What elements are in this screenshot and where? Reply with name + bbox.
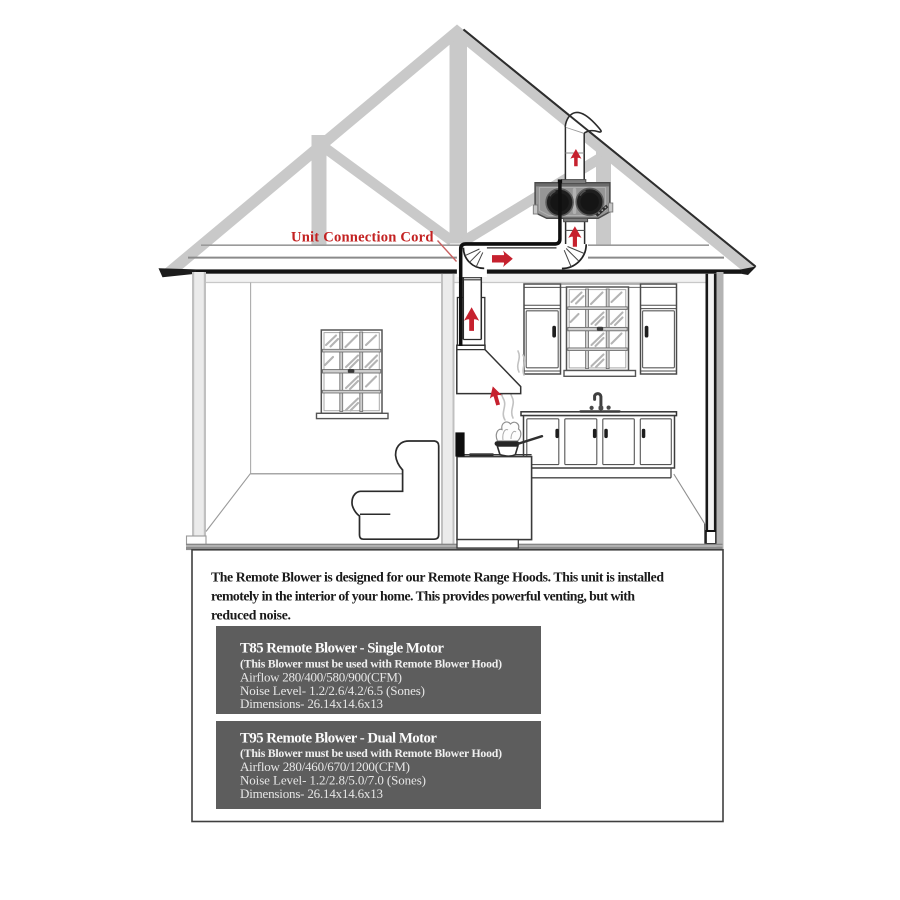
svg-text:remotely in the interior of yo: remotely in the interior of your home. T… bbox=[211, 589, 635, 604]
svg-text:T95 Remote Blower - Dual Motor: T95 Remote Blower - Dual Motor bbox=[240, 730, 437, 746]
svg-text:T85 Remote Blower - Single Mot: T85 Remote Blower - Single Motor bbox=[240, 641, 444, 657]
svg-text:The Remote Blower is designed: The Remote Blower is designed for our Re… bbox=[211, 570, 664, 585]
svg-text:reduced noise.: reduced noise. bbox=[211, 608, 291, 623]
svg-text:Dimensions- 26.14x14.6x13: Dimensions- 26.14x14.6x13 bbox=[240, 696, 383, 711]
svg-text:Dimensions- 26.14x14.6x13: Dimensions- 26.14x14.6x13 bbox=[240, 786, 383, 801]
svg-text:(This Blower must be used with: (This Blower must be used with Remote Bl… bbox=[240, 746, 502, 760]
svg-text:Unit Connection Cord: Unit Connection Cord bbox=[291, 230, 434, 246]
svg-text:(This Blower must be used with: (This Blower must be used with Remote Bl… bbox=[240, 656, 502, 670]
